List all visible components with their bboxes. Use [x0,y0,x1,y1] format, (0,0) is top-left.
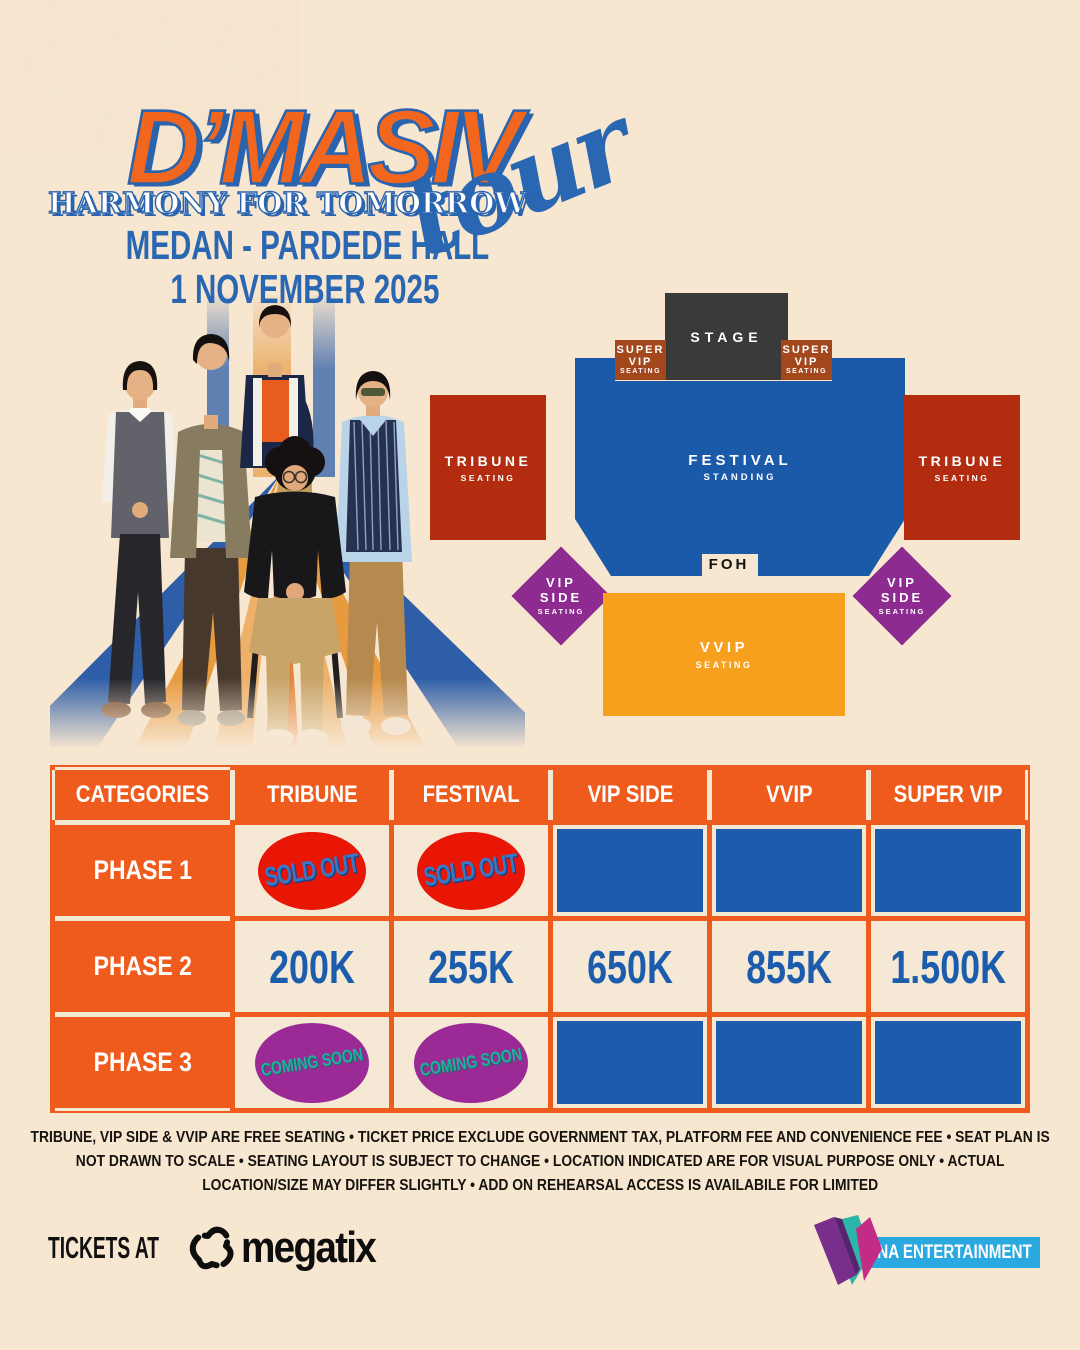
header-vvip: VVIP [712,770,866,820]
blocked-cell-fill [875,1021,1021,1104]
phase2-row-label: PHASE 2 [55,921,230,1012]
tickets-at-megatix: TICKETS AT megatix [48,1222,393,1274]
blocked-cell-fill [716,1021,862,1104]
phase3-row-label: PHASE 3 [55,1017,230,1108]
megatix-ticket-icon [183,1222,235,1274]
phase2-vvip-price: 855K [712,921,866,1012]
sold-out-badge: SOLD OUT [258,832,366,910]
date-line: 1 NOVEMBER 2025 [55,266,555,313]
phase3-tribune-cell: COMING SOON [235,1017,389,1108]
header-festival: FESTIVAL [394,770,548,820]
foh-label: FOH [694,556,764,573]
vip-side-label-left: VIP SIDE SEATING [511,561,611,631]
pricing-table: CATEGORIES TRIBUNE FESTIVAL VIP SIDE VVI… [50,765,1030,1113]
phase2-tribune-price: 200K [235,921,389,1012]
tickets-at-label: TICKETS AT [48,1230,159,1266]
band-photo-illustration [50,290,525,766]
phase1-festival-cell: SOLD OUT [394,825,548,916]
coming-soon-badge: COMING SOON [414,1023,528,1103]
tribune-zone-right: TRIBUNE SEATING [904,395,1020,540]
sold-out-badge: SOLD OUT [417,832,525,910]
phase1-vip-side-cell-blocked [553,825,707,916]
header-vip-side: VIP SIDE [553,770,707,820]
phase2-vip-side-price: 650K [553,921,707,1012]
phase1-row-label: PHASE 1 [55,825,230,916]
makna-entertainment-logo: MAKNA ENTERTAINMENT [812,1213,1047,1293]
poster: D’MASIV tour HARMONY FOR TOMORROW MEDAN … [0,0,1080,1350]
bottom-fade [50,678,525,766]
tour-subtitle: HARMONY FOR TOMORROW [48,186,527,220]
blocked-cell-fill [557,1021,703,1104]
makna-logo-m-icon [812,1213,884,1289]
disclaimer: TRIBUNE, VIP SIDE & VVIP ARE FREE SEATIN… [30,1126,1050,1198]
disclaimer-text: TRIBUNE, VIP SIDE & VVIP ARE FREE SEATIN… [30,1126,1050,1198]
phase3-festival-cell: COMING SOON [394,1017,548,1108]
phase3-super-vip-cell-blocked [871,1017,1025,1108]
header-super-vip: SUPER VIP [871,770,1025,820]
phase2-festival-price: 255K [394,921,548,1012]
phase1-tribune-cell: SOLD OUT [235,825,389,916]
phase1-vvip-cell-blocked [712,825,866,916]
vvip-zone: VVIP SEATING [603,593,845,716]
header-tribune: TRIBUNE [235,770,389,820]
vip-side-label-right: VIP SIDE SEATING [852,561,952,631]
phase2-super-vip-price: 1.500K [871,921,1025,1012]
phase1-super-vip-cell-blocked [871,825,1025,916]
phase3-vip-side-cell-blocked [553,1017,707,1108]
phase3-vvip-cell-blocked [712,1017,866,1108]
stage-label: STAGE [690,329,762,345]
festival-zone-label: FESTIVAL STANDING [640,445,840,489]
blocked-cell-fill [557,829,703,912]
blocked-cell-fill [716,829,862,912]
header-categories: CATEGORIES [55,770,230,820]
coming-soon-badge: COMING SOON [255,1023,369,1103]
blocked-cell-fill [875,829,1021,912]
megatix-wordmark: megatix [241,1223,375,1273]
